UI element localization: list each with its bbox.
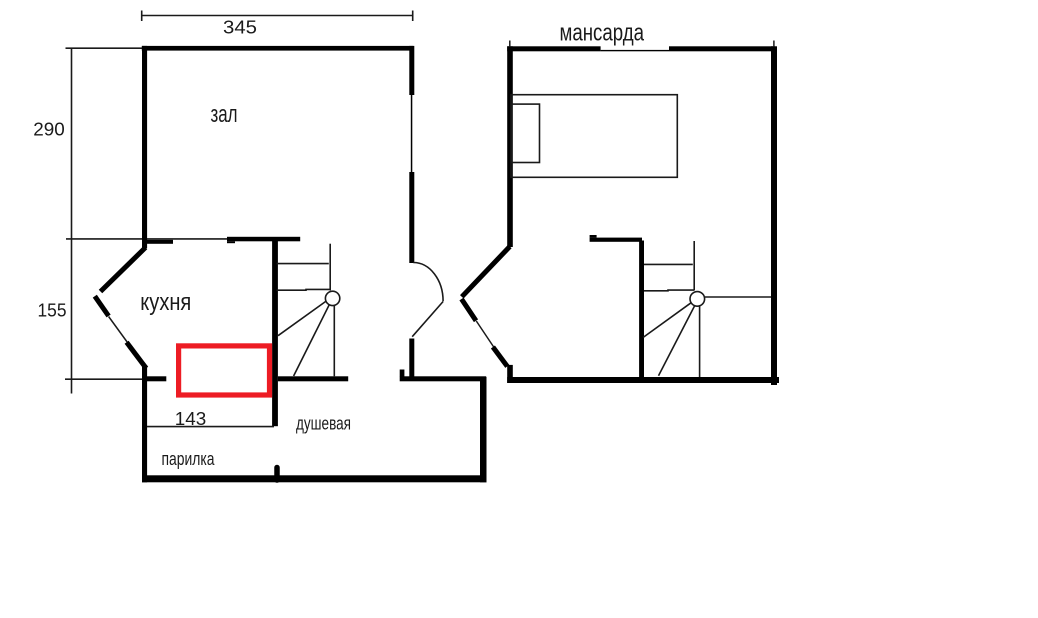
svg-text:155: 155 <box>38 301 67 321</box>
svg-text:парилка: парилка <box>162 449 216 469</box>
svg-text:кухня: кухня <box>140 289 191 316</box>
svg-text:зал: зал <box>211 101 238 128</box>
svg-text:душевая: душевая <box>296 413 351 433</box>
svg-text:143: 143 <box>175 409 207 429</box>
svg-text:мансарда: мансарда <box>560 20 645 47</box>
svg-text:290: 290 <box>33 120 64 140</box>
svg-text:345: 345 <box>223 17 257 37</box>
